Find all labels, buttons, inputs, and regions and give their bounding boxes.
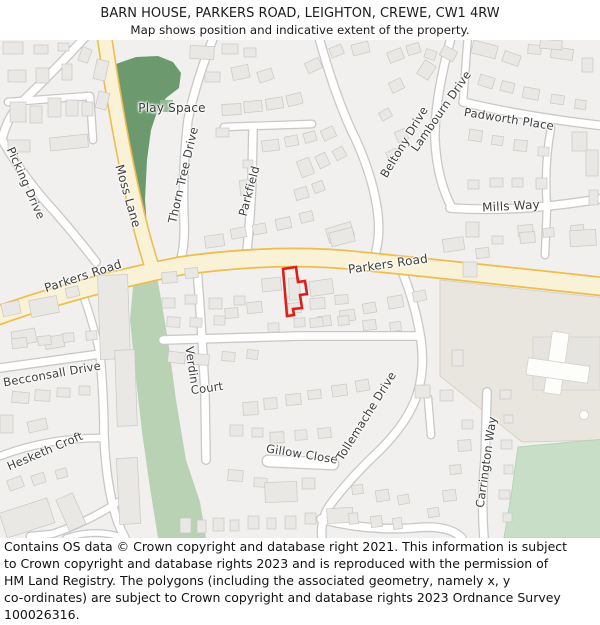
map-svg (0, 40, 600, 538)
property-map: Picking DriveMoss LanePlay SpaceThorn Tr… (0, 40, 600, 538)
copyright-text: Contains OS data © Crown copyright and d… (0, 539, 596, 624)
map-header: BARN HOUSE, PARKERS ROAD, LEIGHTON, CREW… (0, 0, 600, 40)
page-title: BARN HOUSE, PARKERS ROAD, LEIGHTON, CREW… (0, 5, 600, 22)
page-subtitle: Map shows position and indicative extent… (0, 22, 600, 38)
